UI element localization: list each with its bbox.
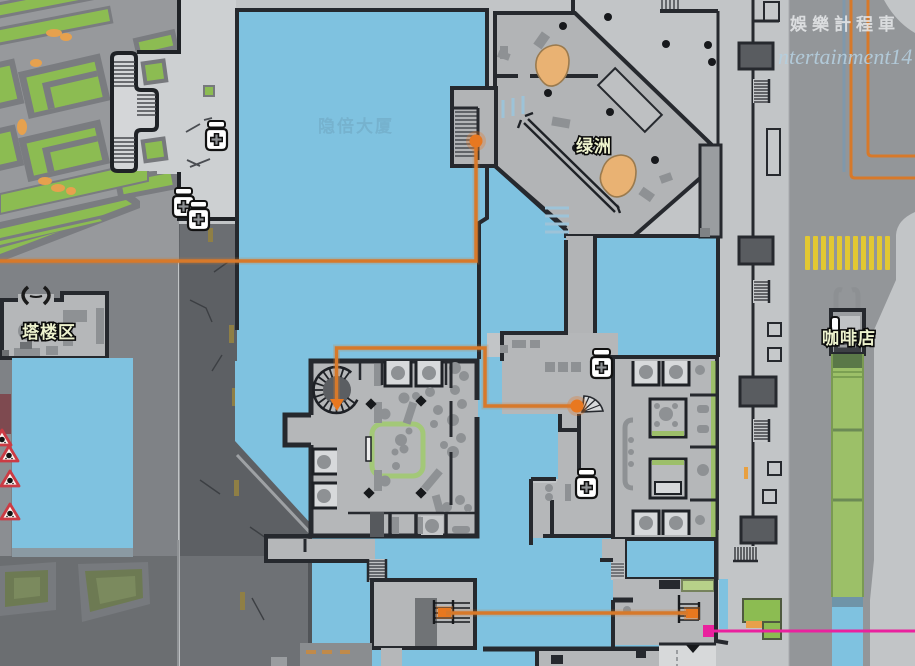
svg-text:塔楼区: 塔楼区: [22, 322, 76, 342]
svg-text:咖啡店: 咖啡店: [822, 328, 876, 348]
svg-text:ntertainment14: ntertainment14: [778, 44, 912, 69]
svg-text:绿洲: 绿洲: [576, 136, 612, 156]
svg-text:隐倍大厦: 隐倍大厦: [318, 116, 394, 136]
svg-text:娛樂計程車: 娛樂計程車: [789, 14, 900, 34]
